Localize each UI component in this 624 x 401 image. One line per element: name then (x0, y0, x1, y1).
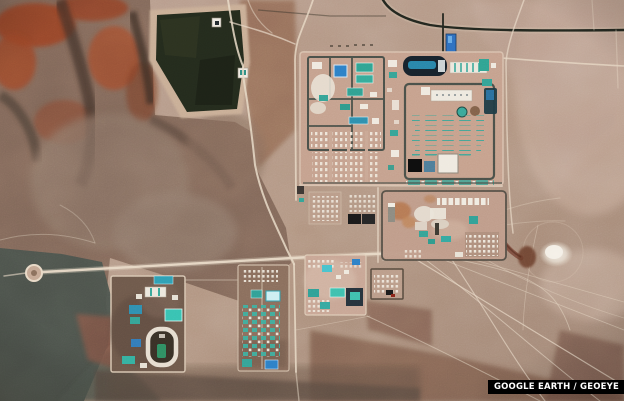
satellite-canvas (0, 0, 624, 401)
attribution-label: GOOGLE EARTH / GEOEYE (494, 382, 619, 392)
vignette (0, 0, 624, 401)
attribution-bar: GOOGLE EARTH / GEOEYE (488, 380, 624, 394)
satellite-screenshot: GOOGLE EARTH / GEOEYE (0, 0, 624, 401)
